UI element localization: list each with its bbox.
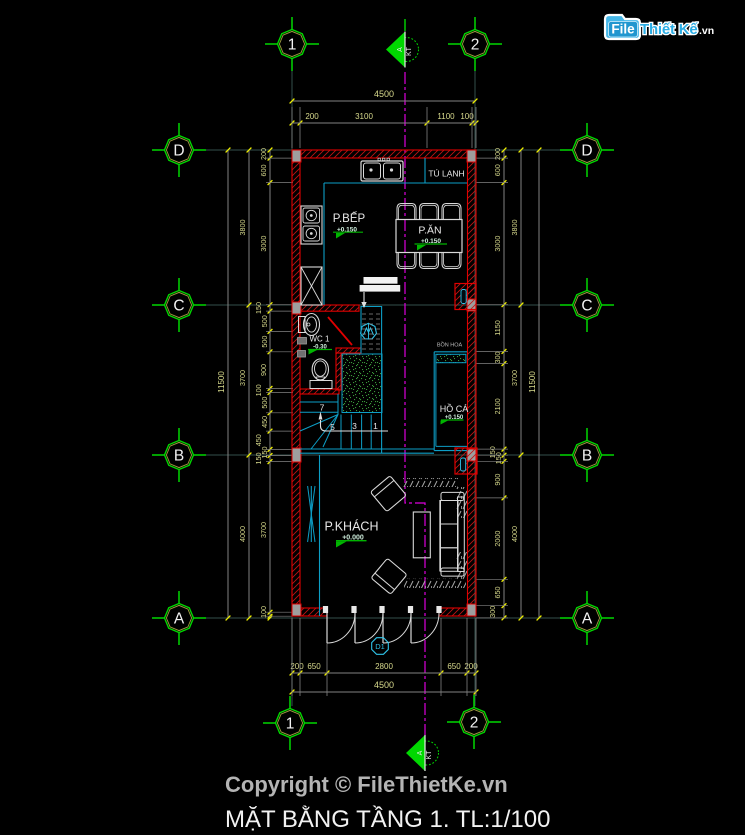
svg-text:1: 1 bbox=[286, 716, 295, 733]
svg-text:200: 200 bbox=[305, 112, 319, 121]
svg-text:2: 2 bbox=[470, 715, 479, 732]
svg-text:600: 600 bbox=[493, 164, 502, 176]
svg-text:4500: 4500 bbox=[374, 680, 394, 690]
svg-text:BỒN HOA: BỒN HOA bbox=[437, 342, 463, 349]
svg-text:D: D bbox=[581, 143, 592, 160]
svg-text:300: 300 bbox=[488, 606, 497, 618]
svg-text:B: B bbox=[582, 448, 592, 465]
svg-text:450: 450 bbox=[254, 434, 263, 446]
svg-text:1150: 1150 bbox=[493, 320, 502, 335]
svg-text:KT: KT bbox=[426, 750, 433, 760]
svg-text:11500: 11500 bbox=[528, 371, 537, 393]
svg-text:P.KHÁCH: P.KHÁCH bbox=[325, 519, 379, 534]
svg-text:150: 150 bbox=[494, 452, 503, 464]
svg-text:150: 150 bbox=[254, 453, 263, 465]
svg-text:D1: D1 bbox=[375, 642, 385, 651]
svg-text:3: 3 bbox=[352, 421, 357, 431]
svg-text:2100: 2100 bbox=[493, 398, 502, 414]
svg-text:MẶT BẰNG TẦNG 1. TL:1/100: MẶT BẰNG TẦNG 1. TL:1/100 bbox=[225, 805, 550, 833]
svg-text:File: File bbox=[611, 22, 635, 37]
svg-text:2800: 2800 bbox=[375, 662, 393, 671]
svg-text:D: D bbox=[173, 143, 184, 160]
svg-text:A: A bbox=[174, 611, 185, 628]
svg-text:1100: 1100 bbox=[437, 112, 455, 121]
svg-text:11500: 11500 bbox=[217, 371, 226, 393]
svg-text:A: A bbox=[397, 47, 404, 52]
svg-text:B: B bbox=[174, 448, 184, 465]
svg-text:3800: 3800 bbox=[510, 220, 519, 236]
svg-text:3000: 3000 bbox=[493, 236, 502, 252]
svg-text:C: C bbox=[173, 298, 184, 315]
svg-text:4000: 4000 bbox=[238, 526, 247, 542]
svg-text:1: 1 bbox=[373, 421, 378, 431]
svg-text:3000: 3000 bbox=[259, 236, 268, 252]
svg-text:600: 600 bbox=[259, 165, 268, 177]
svg-text:300: 300 bbox=[493, 352, 502, 364]
svg-text:P.ĂN: P.ĂN bbox=[418, 224, 441, 237]
svg-text:HỒ CÁ: HỒ CÁ bbox=[440, 403, 469, 414]
svg-text:3800: 3800 bbox=[238, 220, 247, 236]
svg-text:Thiết Kế: Thiết Kế bbox=[640, 21, 698, 38]
svg-text:650: 650 bbox=[493, 587, 502, 599]
svg-text:500: 500 bbox=[260, 315, 269, 327]
svg-text:450: 450 bbox=[260, 416, 269, 428]
svg-text:650: 650 bbox=[307, 662, 321, 671]
svg-text:3100: 3100 bbox=[355, 112, 373, 121]
svg-text:500: 500 bbox=[260, 336, 269, 348]
svg-text:KT: KT bbox=[406, 46, 413, 56]
svg-text:150: 150 bbox=[254, 302, 263, 314]
svg-text:4000: 4000 bbox=[510, 526, 519, 542]
svg-text:650: 650 bbox=[447, 662, 461, 671]
svg-text:3700: 3700 bbox=[510, 370, 519, 386]
svg-text:.vn: .vn bbox=[699, 25, 714, 37]
svg-text:Copyright © FileThietKe.vn: Copyright © FileThietKe.vn bbox=[225, 772, 508, 797]
svg-text:3700: 3700 bbox=[238, 370, 247, 386]
svg-text:TÚ LẠNH: TÚ LẠNH bbox=[428, 169, 464, 179]
svg-text:A: A bbox=[582, 611, 593, 628]
svg-text:4500: 4500 bbox=[374, 89, 394, 99]
svg-text:200: 200 bbox=[290, 662, 304, 671]
svg-text:3700: 3700 bbox=[259, 522, 268, 538]
svg-text:2: 2 bbox=[471, 37, 480, 54]
svg-text:7: 7 bbox=[320, 403, 325, 413]
svg-text:A: A bbox=[417, 750, 424, 755]
svg-text:500: 500 bbox=[260, 397, 269, 409]
svg-text:900: 900 bbox=[493, 474, 502, 486]
svg-text:1: 1 bbox=[288, 37, 297, 54]
svg-text:5: 5 bbox=[330, 422, 335, 432]
svg-text:P.BẾP: P.BẾP bbox=[333, 212, 366, 225]
svg-text:C: C bbox=[581, 298, 592, 315]
svg-text:2000: 2000 bbox=[493, 531, 502, 547]
svg-text:WC 1: WC 1 bbox=[310, 335, 331, 344]
svg-text:900: 900 bbox=[259, 364, 268, 376]
svg-text:100: 100 bbox=[254, 384, 263, 396]
